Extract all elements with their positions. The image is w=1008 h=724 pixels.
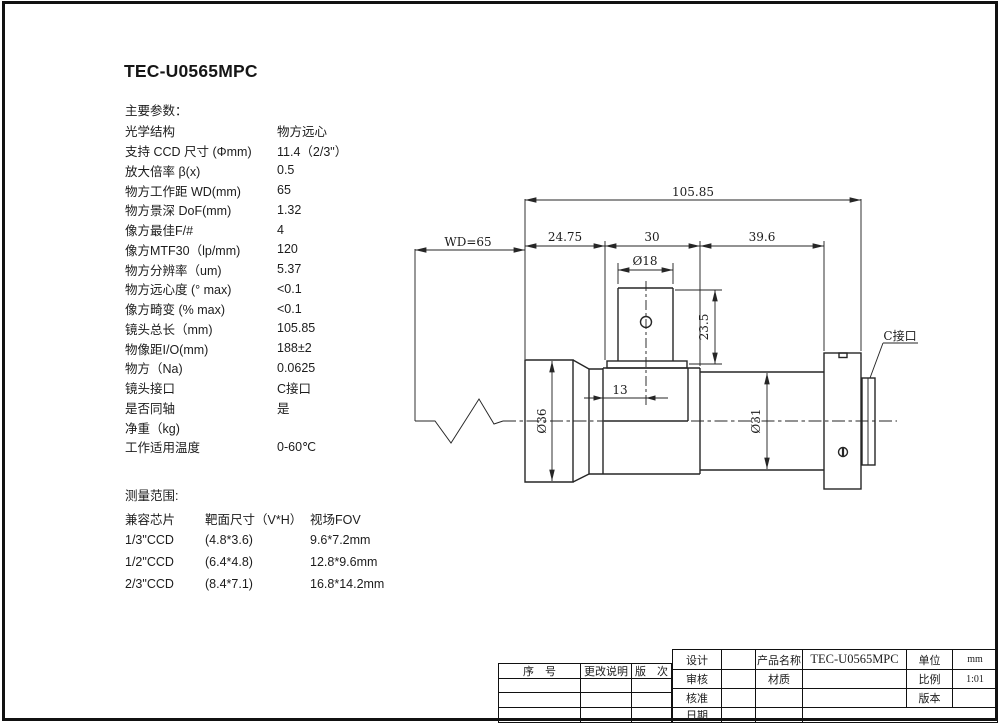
- param-label: 物方（Na): [125, 358, 277, 377]
- rev-empty-cell: [581, 693, 632, 708]
- approve-label: 核准: [673, 689, 722, 708]
- dim-mid-length: 30: [644, 230, 659, 244]
- version-value: [953, 689, 997, 708]
- col-header: 兼容芯片: [125, 509, 205, 528]
- revision-table: 序 号 更改说明 版 次: [498, 663, 672, 723]
- param-row: 物方工作距 WD(mm)65: [125, 180, 415, 200]
- rev-empty-cell: [499, 693, 581, 708]
- product-name-value: TEC-U0565MPC: [803, 650, 907, 670]
- rev-header-serial: 序 号: [499, 664, 581, 679]
- param-label: 支持 CCD 尺寸 (Φmm): [125, 141, 277, 160]
- version-label: 版本: [907, 689, 953, 708]
- dim-front-diameter: Ø36: [535, 408, 549, 433]
- param-value: 11.4（2/3"）: [277, 141, 415, 160]
- rev-empty-cell: [632, 693, 671, 708]
- rev-header-version: 版 次: [632, 664, 671, 679]
- coaxial-light-port: [618, 288, 673, 361]
- sensor-size: (6.4*4.8): [205, 555, 310, 569]
- c-mount-thread-ring: [862, 378, 875, 465]
- param-label: 镜头总长（mm): [125, 319, 277, 338]
- fov-value: 16.8*14.2mm: [310, 577, 384, 591]
- product-name-label: 产品名称: [756, 650, 803, 670]
- param-row: 工作适用温度0-60℃: [125, 437, 415, 457]
- dim-working-distance: WD=65: [444, 235, 491, 249]
- lens-technical-drawing: 105.85 WD=65 24.75 30 39.6 Ø18 23.5 13 Ø…: [395, 165, 1008, 515]
- dim-total-length: 105.85: [672, 185, 714, 199]
- param-row: 放大倍率 β(x)0.5: [125, 161, 415, 181]
- param-label: 光学结构: [125, 121, 277, 140]
- param-row: 支持 CCD 尺寸 (Φmm)11.4（2/3"）: [125, 141, 415, 161]
- param-label: 像方MTF30（lp/mm): [125, 240, 277, 259]
- params-list: 光学结构物方远心 支持 CCD 尺寸 (Φmm)11.4（2/3"） 放大倍率 …: [125, 121, 415, 457]
- chip-type: 2/3"CCD: [125, 577, 205, 591]
- chip-type: 1/3"CCD: [125, 533, 205, 547]
- params-heading: 主要参数：: [125, 100, 188, 119]
- measurement-header-row: 兼容芯片 靶面尺寸（V*H） 视场FOV: [125, 507, 384, 529]
- param-row: 物方景深 DoF(mm)1.32: [125, 200, 415, 220]
- param-row: 光学结构物方远心: [125, 121, 415, 141]
- break-zigzag: [415, 399, 503, 443]
- fov-value: 12.8*9.6mm: [310, 555, 384, 569]
- scale-value: 1:01: [953, 670, 997, 689]
- rev-empty-cell: [581, 679, 632, 694]
- param-label: 是否同轴: [125, 398, 277, 417]
- param-row: 物方分辨率（um)5.37: [125, 259, 415, 279]
- review-label: 审核: [673, 670, 722, 689]
- dim-rear-diameter: Ø31: [749, 408, 763, 433]
- dim-front-length: 24.75: [548, 230, 582, 244]
- c-mount-label: C接口: [883, 328, 916, 343]
- measurement-row: 1/3"CCD (4.8*3.6) 9.6*7.2mm: [125, 529, 384, 551]
- rev-empty-cell: [581, 708, 632, 723]
- page-title: TEC-U0565MPC: [124, 61, 258, 82]
- param-label: 工作适用温度: [125, 437, 277, 456]
- dim-port-offset: 13: [612, 383, 627, 397]
- param-label: 放大倍率 β(x): [125, 161, 277, 180]
- datasheet-page: TEC-U0565MPC 主要参数： 光学结构物方远心 支持 CCD 尺寸 (Φ…: [0, 0, 1008, 724]
- param-label: 物方远心度 (° max): [125, 279, 277, 298]
- dim-port-height: 23.5: [697, 314, 711, 341]
- extension-lines: [525, 199, 861, 366]
- rev-empty-cell: [632, 708, 671, 723]
- param-label: 净重（kg): [125, 418, 277, 437]
- param-value: 物方远心: [277, 121, 415, 140]
- title-block: 设计 产品名称 TEC-U0565MPC 单位 mm 审核 材质 比例 1:01…: [672, 649, 998, 723]
- param-label: 物像距I/O(mm): [125, 339, 277, 358]
- date-label: 日期: [673, 708, 722, 722]
- empty-cell: [756, 689, 803, 708]
- col-header: 靶面尺寸（V*H）: [205, 509, 310, 528]
- measurement-row: 2/3"CCD (8.4*7.1) 16.8*14.2mm: [125, 573, 384, 595]
- rev-empty-cell: [632, 679, 671, 694]
- param-row: 物方远心度 (° max)<0.1: [125, 279, 415, 299]
- design-value: [722, 650, 756, 670]
- unit-label: 单位: [907, 650, 953, 670]
- unit-value: mm: [953, 650, 997, 670]
- date-value: [722, 708, 756, 722]
- col-header: 视场FOV: [310, 509, 384, 528]
- mount-leader-line: [870, 343, 918, 378]
- review-value: [722, 670, 756, 689]
- measurement-table: 兼容芯片 靶面尺寸（V*H） 视场FOV 1/3"CCD (4.8*3.6) 9…: [125, 507, 384, 595]
- rev-header-change: 更改说明: [581, 664, 632, 679]
- param-label: 物方分辨率（um): [125, 260, 277, 279]
- param-row: 像方畸变 (% max)<0.1: [125, 299, 415, 319]
- centerlines: [415, 249, 897, 443]
- measurement-row: 1/2"CCD (6.4*4.8) 12.8*9.6mm: [125, 551, 384, 573]
- param-row: 净重（kg): [125, 417, 415, 437]
- param-label: 像方畸变 (% max): [125, 299, 277, 318]
- design-label: 设计: [673, 650, 722, 670]
- chip-type: 1/2"CCD: [125, 555, 205, 569]
- dim-port-diameter: Ø18: [632, 254, 657, 268]
- param-row: 镜头总长（mm)105.85: [125, 319, 415, 339]
- empty-cell: [803, 708, 997, 722]
- scale-label: 比例: [907, 670, 953, 689]
- param-row: 物方（Na)0.0625: [125, 358, 415, 378]
- sensor-size: (4.8*3.6): [205, 533, 310, 547]
- port-collar: [607, 361, 687, 368]
- param-row: 镜头接口C接口: [125, 378, 415, 398]
- param-row: 像方最佳F/#4: [125, 220, 415, 240]
- material-value: [803, 670, 907, 689]
- param-label: 像方最佳F/#: [125, 220, 277, 239]
- empty-cell: [756, 708, 803, 722]
- material-label: 材质: [756, 670, 803, 689]
- param-row: 物像距I/O(mm)188±2: [125, 338, 415, 358]
- param-row: 是否同轴是: [125, 398, 415, 418]
- param-label: 物方景深 DoF(mm): [125, 200, 277, 219]
- rev-empty-cell: [499, 708, 581, 723]
- param-label: 物方工作距 WD(mm): [125, 181, 277, 200]
- measurement-heading: 测量范围:: [125, 485, 178, 504]
- approve-value: [722, 689, 756, 708]
- sensor-size: (8.4*7.1): [205, 577, 310, 591]
- param-row: 像方MTF30（lp/mm)120: [125, 240, 415, 260]
- fov-value: 9.6*7.2mm: [310, 533, 384, 547]
- dim-rear-length: 39.6: [749, 230, 776, 244]
- param-label: 镜头接口: [125, 378, 277, 397]
- rev-empty-cell: [499, 679, 581, 694]
- empty-cell: [803, 689, 907, 708]
